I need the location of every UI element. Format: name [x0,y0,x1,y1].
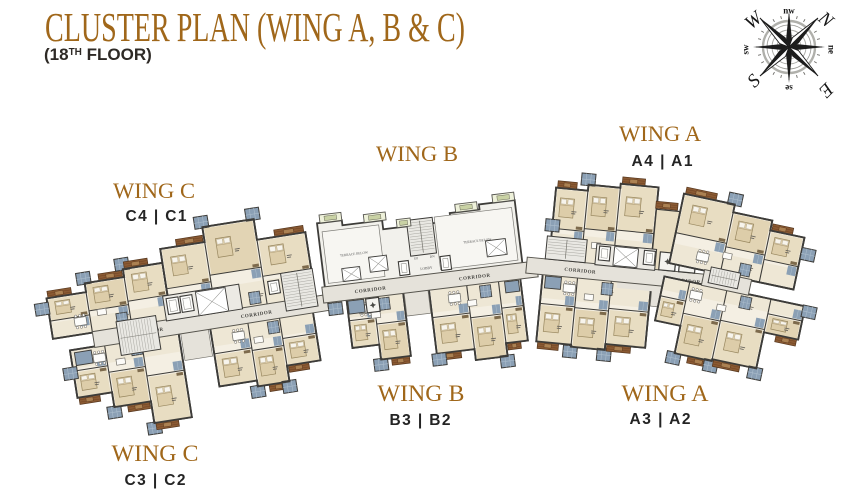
svg-text:nw: nw [783,6,795,16]
svg-text:se: se [785,83,793,93]
svg-text:A3 | A2: A3 | A2 [630,411,691,428]
svg-text:CLUSTER PLAN (WING A, B & C): CLUSTER PLAN (WING A, B & C) [45,4,465,50]
svg-text:WING C: WING C [112,441,199,466]
svg-text:(18TH FLOOR): (18TH FLOOR) [44,45,152,64]
svg-text:sw: sw [741,44,751,55]
svg-text:C3 | C2: C3 | C2 [125,472,186,489]
svg-text:C4 | C1: C4 | C1 [126,208,187,225]
svg-text:WING A: WING A [619,121,701,146]
svg-text:UP: UP [414,256,419,260]
svg-text:WING B: WING B [376,141,458,166]
svg-text:ne: ne [827,45,837,54]
svg-text:WING A: WING A [622,381,709,406]
svg-text:WING B: WING B [378,381,465,406]
svg-text:WING C: WING C [113,178,195,203]
svg-text:A4 | A1: A4 | A1 [632,153,693,170]
svg-text:B3 | B2: B3 | B2 [390,412,451,429]
